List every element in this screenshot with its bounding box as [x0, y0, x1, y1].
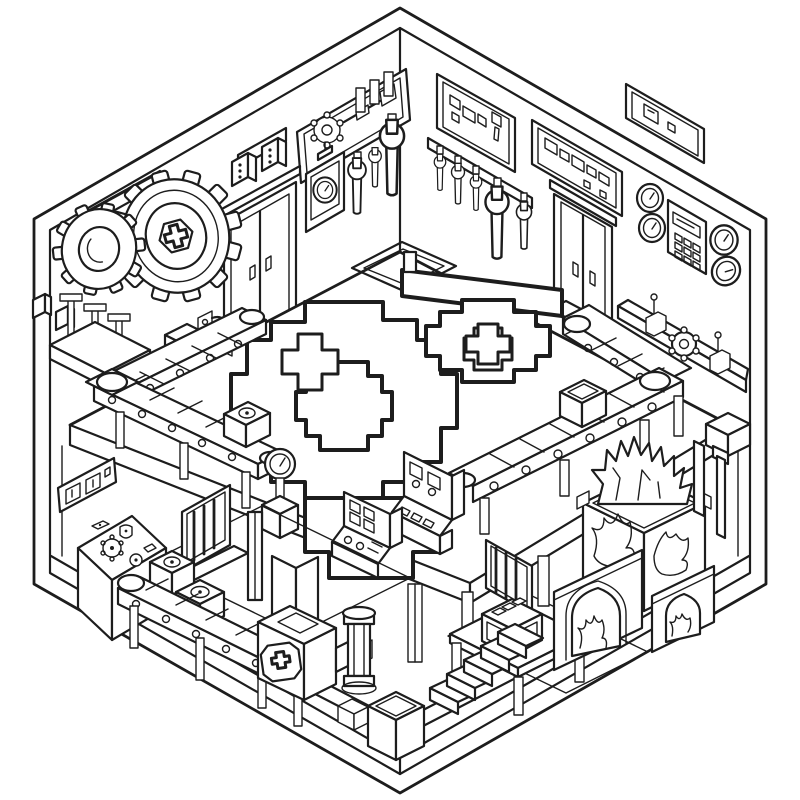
shield-icon: [120, 525, 132, 538]
emblem-stub: [404, 252, 416, 272]
cross-screw-icon: [260, 642, 303, 683]
factory-illustration-page: Isometric blocky factory workshop cutawa…: [0, 0, 800, 800]
gauge-icon: [710, 225, 737, 254]
pressure-gauge-icon: [313, 177, 336, 202]
gauge-icon: [639, 214, 665, 242]
factory-illustration: Isometric blocky factory workshop cutawa…: [0, 0, 800, 800]
gauge-icon: [637, 184, 663, 212]
flanged-pipe-column: [342, 607, 376, 694]
gear-icon: [130, 554, 142, 566]
